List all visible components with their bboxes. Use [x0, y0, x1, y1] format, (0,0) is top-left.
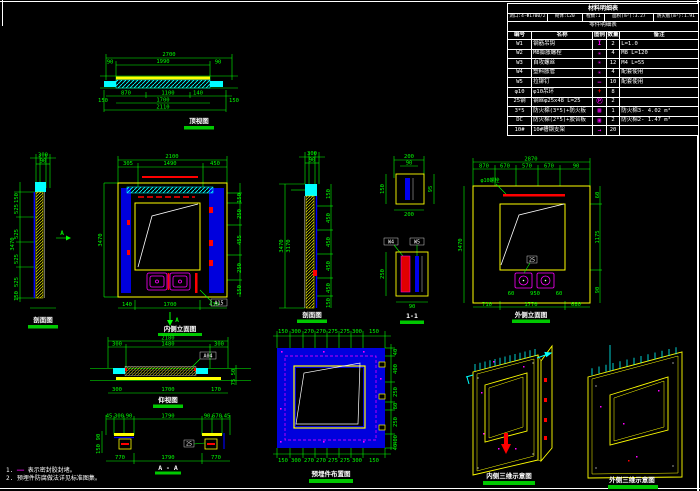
col-symbol: 图例 [592, 32, 606, 40]
bracket-bar [114, 433, 134, 436]
view-label: 内侧三维示意图 [486, 471, 532, 480]
svg-text:1700: 1700 [156, 98, 169, 104]
flange-anchors [544, 378, 547, 440]
cad-drawing-canvas: 2700 1990 90 90 870 1100 140 1700 2110 1… [0, 0, 700, 491]
view-label: A - A [158, 464, 178, 472]
table-row: W4 塑料胀管 ✳ 4 配套使用 [508, 68, 698, 78]
cell-qty: 8 [606, 88, 620, 97]
cell-qty: 20 [606, 126, 620, 135]
embed-dots [600, 390, 660, 458]
table-row: φ10 φ10吊环 + 8 [508, 87, 698, 97]
svg-text:25: 25 [529, 258, 535, 264]
cell-note: L=1.0 [619, 40, 698, 49]
red-divider [168, 273, 170, 290]
view-label: 预埋件布置图 [312, 469, 352, 478]
svg-text:270: 270 [304, 329, 314, 335]
svg-text:1100: 1100 [161, 91, 174, 97]
note-line-1: 1. —— 表示密封胶封堵。 [6, 467, 101, 475]
svg-text:150: 150 [369, 329, 379, 335]
cell-qty: 2 [606, 117, 620, 126]
red-mark [125, 368, 127, 371]
svg-text:3470: 3470 [279, 239, 285, 252]
dim-texts-bottom: 150 300 270 270 275 275 300 150 [278, 458, 379, 464]
svg-text:300: 300 [114, 414, 124, 420]
svg-text:400: 400 [393, 364, 399, 374]
svg-text:150: 150 [326, 298, 332, 308]
red-dot [628, 460, 630, 462]
view-top[interactable]: 2700 1990 90 90 870 1100 140 1700 2110 1… [98, 40, 240, 138]
label-underline [28, 325, 58, 329]
hatch-band [116, 80, 210, 88]
speaker-box [147, 273, 167, 290]
svg-text:1790: 1790 [161, 455, 174, 461]
svg-text:770: 770 [115, 455, 125, 461]
svg-text:270: 270 [304, 458, 314, 464]
cell-name: φ10吊环 [531, 88, 592, 97]
svg-text:90: 90 [406, 161, 413, 167]
cell-note: M4 L=55 [619, 59, 698, 68]
svg-text:450: 450 [326, 213, 332, 223]
table-row: 3*5 防火棉(3*5)+防火板 ▦ 1 防火棉3- 4.02 m² [508, 106, 698, 116]
speaker-box [170, 273, 190, 290]
svg-text:40: 40 [393, 349, 399, 356]
lintel-red-bar [503, 194, 565, 197]
blue-insert [415, 256, 419, 292]
svg-text:90: 90 [107, 60, 114, 66]
svg-text:75: 75 [231, 379, 237, 386]
svg-text:3170: 3170 [286, 239, 292, 252]
svg-text:400: 400 [393, 435, 399, 445]
svg-text:670: 670 [544, 164, 554, 170]
col-note: 备注 [619, 32, 698, 40]
svg-text:3470: 3470 [98, 233, 104, 246]
cell-name: 自攻螺丝 [531, 59, 592, 68]
table-row: W3 自攻螺丝 ✳ 12 M4 L=55 [508, 58, 698, 68]
col-id: 编号 [508, 32, 531, 40]
cell-id: W3 [508, 59, 531, 68]
svg-text:45: 45 [106, 414, 113, 420]
svg-text:275: 275 [328, 329, 338, 335]
svg-text:90: 90 [573, 164, 580, 170]
table-row: W1 钢筋吊钩 I 2 L=1.0 [508, 39, 698, 49]
cell-qty: 2 [606, 98, 620, 107]
svg-text:W5: W5 [414, 240, 420, 246]
red-mark [194, 368, 196, 371]
svg-text:1700: 1700 [161, 387, 174, 393]
note-number: 1. [6, 467, 13, 474]
anchor-spikes [475, 349, 535, 371]
svg-text:90: 90 [595, 287, 601, 294]
red-divider [195, 273, 198, 293]
view-label: 外侧立面图 [515, 310, 548, 319]
table-title: 材料明细表 [508, 4, 698, 13]
cell-note: 配套使用 [619, 69, 698, 78]
legend-symbol: I [592, 40, 606, 49]
red-dash [121, 443, 129, 445]
svg-text:A: A [175, 317, 179, 324]
end-cap-left [104, 81, 116, 87]
cell-name: 防火棉(3*5)+防火板 [531, 107, 592, 116]
glass-symbol [138, 204, 198, 267]
svg-text:270: 270 [316, 329, 326, 335]
dim-texts-top: 150 300 270 270 275 275 300 150 [278, 329, 379, 335]
svg-text:A15: A15 [214, 301, 223, 307]
svg-text:1480: 1480 [161, 342, 174, 348]
view-label: 仰视图 [158, 395, 178, 404]
legend-symbol: → [592, 126, 606, 135]
cell-qty: 4 [606, 50, 620, 59]
cell-qty: 1 [606, 107, 620, 116]
cell-name: 钢丝φ25x48 L=25 [531, 98, 592, 107]
wall-hatch [306, 196, 314, 308]
svg-text:275: 275 [340, 329, 350, 335]
svg-text:3470: 3470 [458, 238, 464, 251]
svg-text:150: 150 [278, 458, 288, 464]
view-label: 外侧三维示意图 [609, 475, 655, 484]
view-label: 内侧立面图 [164, 324, 197, 333]
lintel-red-bar [142, 176, 198, 178]
svg-text:525: 525 [14, 204, 20, 214]
svg-text:150: 150 [98, 98, 108, 104]
svg-text:60: 60 [595, 192, 601, 199]
label-underline [512, 320, 550, 324]
svg-text:200: 200 [404, 212, 414, 218]
dim-texts: 300 90 3470 3170 150 450 450 450 450 150 [279, 151, 332, 308]
cell-id: W2 [508, 50, 531, 59]
svg-text:140: 140 [193, 91, 203, 97]
svg-text:1490: 1490 [163, 161, 176, 167]
cell-id: W5 [508, 78, 531, 87]
view-bottom-section1[interactable]: A04 2180 300 1480 300 300 1700 170 50 75… [88, 335, 254, 409]
table-params-row: 洞口:4-Φ1700/2 砌体:C20 樘数:1 面积(m²):3.27 防火板… [508, 13, 698, 21]
svg-text:300: 300 [112, 342, 122, 348]
hatch-band [125, 367, 196, 376]
view-right-elevation[interactable]: φ10螺栓 25 2870 870 670 570 670 90 3470 60… [450, 155, 612, 323]
svg-text:300: 300 [112, 387, 122, 393]
label-underline [155, 472, 181, 475]
top-hatch-band [127, 187, 213, 193]
label-underline [184, 126, 214, 130]
svg-text:φ10螺栓: φ10螺栓 [480, 177, 499, 184]
cell-note: M8 L=120 [619, 50, 698, 59]
svg-text:1990: 1990 [156, 59, 169, 65]
frame-left [2, 0, 3, 26]
legend-symbol: ✳ [592, 69, 606, 78]
svg-text:150: 150 [278, 329, 288, 335]
svg-text:60: 60 [508, 291, 515, 297]
svg-text:90: 90 [204, 414, 211, 420]
svg-text:300: 300 [291, 458, 301, 464]
panel-bar [116, 77, 210, 80]
note-text: 表示密封胶封堵。 [28, 467, 76, 474]
svg-text:150: 150 [229, 98, 239, 104]
legend-dash: —— [17, 467, 24, 474]
param-opening: 洞口:4-Φ1700/2 [508, 14, 547, 21]
svg-text:150: 150 [14, 193, 20, 203]
gasket-red [401, 256, 410, 292]
top-cap [35, 182, 46, 192]
view-label: 剖面图 [302, 310, 322, 319]
legend-symbol: Ⓟ [592, 98, 606, 107]
svg-text:45: 45 [224, 414, 231, 420]
svg-text:50: 50 [231, 369, 237, 376]
blue-insert [405, 178, 410, 200]
table-row: W5 拉铆钉 — 10 配套使用 [508, 77, 698, 87]
legend-symbol: ▣ [592, 117, 606, 126]
anchor-mark [313, 270, 317, 276]
wall-hatch [36, 192, 43, 298]
leader-25: 25 [184, 440, 205, 448]
section-marker: A [60, 230, 64, 237]
cell-id: W4 [508, 69, 531, 78]
view-left-section[interactable]: 300 90 150 525 525 525 525 150 3470 A 剖面… [12, 152, 98, 338]
drawing-notes: 1. —— 表示密封胶封堵。 2. 预埋件防腐做法详见标准图集。 [6, 467, 101, 483]
svg-text:305: 305 [123, 161, 133, 167]
svg-text:95: 95 [428, 186, 434, 193]
view-label: 1-1 [406, 312, 418, 320]
view-bottom-section2[interactable]: 25 45 300 90 1790 90 670 45 770 1790 770… [88, 409, 260, 475]
cell-qty: 12 [606, 59, 620, 68]
svg-text:3470: 3470 [10, 237, 16, 250]
table-row: DC 防火棉(2*5)+胶合板 ▣ 2 防火棉2- 1.47 m² [508, 116, 698, 126]
section-marker: A [167, 312, 179, 326]
embed-dots [481, 361, 525, 450]
view-iso-left[interactable]: 内侧三维示意图 [453, 328, 579, 488]
part-callouts: W4 W5 [384, 238, 424, 256]
svg-text:1700: 1700 [163, 302, 176, 308]
section-marker-arrow [66, 236, 71, 241]
param-count: 樘数:1 [582, 14, 604, 21]
svg-text:770: 770 [211, 455, 221, 461]
cell-note: 防火棉3- 4.02 m² [619, 107, 698, 116]
svg-text:300: 300 [352, 458, 362, 464]
panel-bar [116, 377, 221, 380]
cell-name: 10#槽钢支架 [531, 126, 592, 135]
table-row: 25钢 钢丝φ25x48 L=25 Ⓟ 2 [508, 97, 698, 107]
label-underline [309, 479, 353, 483]
cell-name: M8膨胀螺栓 [531, 50, 592, 59]
cell-id: 10# [508, 126, 531, 135]
top-cap [305, 184, 317, 196]
svg-text:1790: 1790 [161, 414, 174, 420]
cell-name: 塑料胀管 [531, 69, 592, 78]
svg-text:670: 670 [500, 164, 510, 170]
cell-note [619, 126, 698, 135]
panel-3d [588, 352, 682, 478]
svg-text:60: 60 [556, 291, 563, 297]
svg-text:2100: 2100 [165, 154, 178, 160]
cell-qty: 2 [606, 40, 620, 49]
svg-text:300: 300 [291, 329, 301, 335]
svg-text:1770: 1770 [524, 302, 537, 308]
svg-text:90: 90 [215, 60, 222, 66]
svg-text:525: 525 [14, 254, 20, 264]
svg-text:680: 680 [571, 302, 581, 308]
svg-text:90: 90 [96, 434, 102, 441]
cell-id: φ10 [508, 88, 531, 97]
cell-note [619, 88, 698, 97]
svg-text:150: 150 [237, 285, 243, 295]
view-small-details[interactable]: W4 W5 200 90 150 95 200 250 90 1-1 [372, 152, 448, 328]
param-board-area: 防火板(m²):1.91 [653, 14, 698, 21]
callout: A04 [192, 352, 216, 367]
table-row: 10# 10#槽钢支架 → 20 [508, 125, 698, 135]
svg-text:250: 250 [237, 209, 243, 219]
svg-text:150: 150 [326, 189, 332, 199]
label-underline [483, 481, 535, 485]
speaker-box [537, 273, 554, 288]
red-arrow [501, 433, 511, 454]
cell-note [619, 98, 698, 107]
svg-text:2870: 2870 [524, 157, 537, 163]
svg-text:150: 150 [96, 444, 102, 454]
speaker-box [515, 273, 532, 288]
legend-symbol: — [592, 78, 606, 87]
cell-note: 防火棉2- 1.47 m² [619, 117, 698, 126]
svg-text:450: 450 [326, 283, 332, 293]
cell-name: 防火棉(2*5)+胶合板 [531, 117, 592, 126]
svg-text:2700: 2700 [162, 52, 175, 58]
cell-id: 3*5 [508, 107, 531, 116]
cell-qty: 10 [606, 78, 620, 87]
legend-symbol: + [592, 88, 606, 97]
svg-text:270: 270 [316, 458, 326, 464]
svg-text:170: 170 [211, 387, 221, 393]
end-cap-right [210, 81, 223, 87]
dim-texts: 2180 300 1480 300 300 1700 170 50 75 [112, 336, 237, 394]
cell-id: W1 [508, 40, 531, 49]
svg-text:300: 300 [307, 151, 317, 157]
view-main-elevation[interactable]: 2100 305 1490 450 150 250 455 250 150 14… [90, 150, 266, 336]
svg-text:150: 150 [14, 291, 20, 301]
view-iso-right[interactable]: 外侧三维示意图 [578, 328, 696, 490]
screw-dots [595, 362, 673, 468]
dim-texts: 2870 870 670 570 670 90 3470 60 1175 90 … [458, 157, 601, 309]
svg-text:450: 450 [326, 261, 332, 271]
svg-text:250: 250 [237, 263, 243, 273]
svg-text:275: 275 [328, 458, 338, 464]
view-label: 剖面图 [33, 315, 53, 324]
param-area: 面积(m²):3.27 [604, 14, 653, 21]
svg-text:450: 450 [210, 161, 220, 167]
svg-text:200: 200 [404, 154, 414, 160]
svg-text:90: 90 [309, 158, 316, 164]
svg-text:80: 80 [393, 403, 399, 410]
cell-id: 25钢 [508, 98, 531, 107]
svg-text:450: 450 [326, 237, 332, 247]
legend-symbol: ✳ [592, 50, 606, 59]
label-underline [297, 320, 327, 324]
svg-text:710: 710 [482, 302, 492, 308]
table-row: W2 M8膨胀螺栓 ✳ 4 M8 L=120 [508, 49, 698, 59]
svg-text:40: 40 [393, 444, 399, 451]
svg-text:150: 150 [237, 193, 243, 203]
end-cap-left [113, 368, 125, 374]
frame-top [0, 1, 700, 2]
note-line-2: 2. 预埋件防腐做法详见标准图集。 [6, 475, 101, 483]
opening [296, 368, 363, 426]
svg-text:150: 150 [369, 458, 379, 464]
cell-name: 拉铆钉 [531, 78, 592, 87]
svg-text:90: 90 [126, 414, 133, 420]
svg-text:455: 455 [237, 235, 243, 245]
end-cap-right [196, 368, 208, 374]
svg-text:250: 250 [380, 269, 386, 279]
svg-text:525: 525 [14, 277, 20, 287]
svg-text:300: 300 [214, 342, 224, 348]
svg-text:870: 870 [479, 164, 489, 170]
svg-text:570: 570 [522, 164, 532, 170]
view-label: 顶视图 [189, 116, 209, 125]
red-dash [207, 443, 215, 445]
svg-text:90: 90 [409, 304, 416, 310]
svg-text:2110: 2110 [156, 105, 169, 111]
svg-text:140: 140 [122, 302, 132, 308]
svg-text:25: 25 [186, 442, 192, 448]
svg-text:150: 150 [380, 184, 386, 194]
view-bottom-plan[interactable]: 150 300 270 270 275 275 300 150 150 300 … [263, 328, 405, 490]
svg-text:1175: 1175 [595, 230, 601, 243]
dim-texts-right: 40 400 250 80 250 400 40 [393, 349, 399, 451]
view-mid-section[interactable]: 300 90 3470 3170 150 450 450 450 450 150… [275, 150, 365, 328]
svg-text:A04: A04 [203, 354, 212, 360]
cell-qty: 4 [606, 69, 620, 78]
param-wall: 砌体:C20 [547, 14, 582, 21]
svg-text:250: 250 [393, 417, 399, 427]
table-header-row: 编号 名称 图例 数量 备注 [508, 31, 698, 40]
cell-name: 钢筋吊钩 [531, 40, 592, 49]
material-table[interactable]: 材料明细表 洞口:4-Φ1700/2 砌体:C20 樘数:1 面积(m²):3.… [507, 3, 699, 136]
bracket-bar [202, 433, 222, 436]
table-subtitle: 零件明细表 [508, 22, 698, 31]
svg-text:950: 950 [530, 291, 540, 297]
svg-text:275: 275 [340, 458, 350, 464]
label-underline [400, 321, 424, 325]
blue-panel-left [121, 188, 131, 293]
col-qty: 数量 [606, 32, 620, 40]
svg-text:870: 870 [121, 91, 131, 97]
svg-text:W4: W4 [388, 240, 394, 246]
col-name: 名称 [531, 32, 592, 40]
legend-symbol: ✳ [592, 59, 606, 68]
cell-note: 配套使用 [619, 78, 698, 87]
svg-text:250: 250 [393, 387, 399, 397]
svg-text:670: 670 [212, 414, 222, 420]
label-underline [608, 485, 658, 489]
label-underline [153, 405, 183, 409]
svg-text:90: 90 [40, 159, 47, 165]
legend-symbol: ▦ [592, 107, 606, 116]
cell-id: DC [508, 117, 531, 126]
inner-frame [135, 203, 200, 270]
svg-text:300: 300 [352, 329, 362, 335]
